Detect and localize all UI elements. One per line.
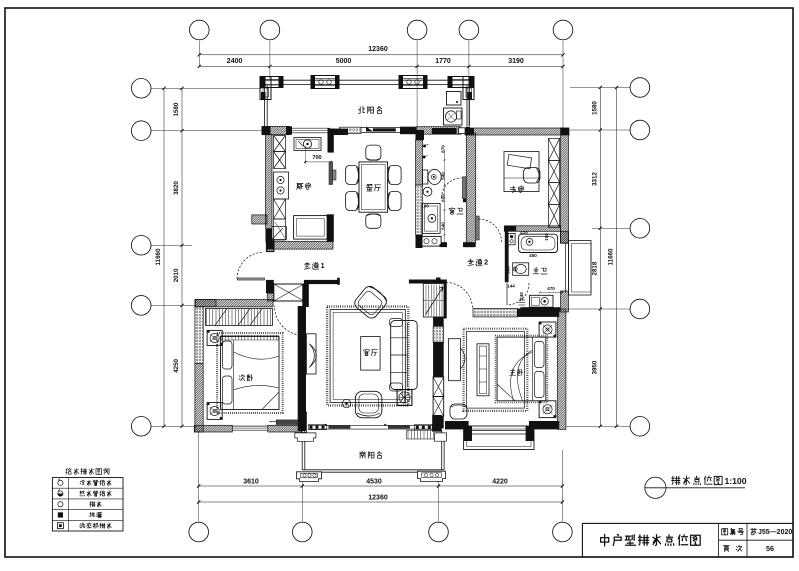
svg-text:190: 190: [421, 204, 429, 209]
svg-text:410: 410: [520, 230, 528, 235]
svg-text:56: 56: [766, 544, 774, 553]
svg-text:4530: 4530: [366, 479, 382, 486]
svg-text:1:100: 1:100: [725, 476, 747, 486]
svg-text:12360: 12360: [368, 46, 388, 53]
svg-text:3190: 3190: [508, 58, 524, 65]
svg-text:150: 150: [544, 233, 549, 241]
svg-text:2818: 2818: [592, 261, 599, 275]
svg-text:3610: 3610: [243, 479, 259, 486]
svg-text:4250: 4250: [173, 358, 180, 372]
svg-text:3950: 3950: [592, 360, 599, 374]
svg-text:3820: 3820: [173, 181, 180, 195]
svg-text:540: 540: [441, 172, 446, 180]
svg-text:11660: 11660: [608, 248, 615, 265]
svg-text:J55—2020: J55—2020: [758, 529, 792, 536]
svg-text:2010: 2010: [173, 268, 180, 282]
svg-text:450: 450: [529, 253, 537, 258]
svg-text:470: 470: [547, 286, 555, 291]
svg-text:3312: 3312: [592, 172, 599, 186]
svg-text:540: 540: [441, 222, 446, 230]
svg-text:2400: 2400: [227, 58, 243, 65]
svg-text:11660: 11660: [155, 248, 162, 265]
svg-text:144: 144: [507, 283, 515, 288]
svg-text:1580: 1580: [173, 102, 180, 116]
svg-text:12360: 12360: [368, 495, 388, 502]
svg-text:240: 240: [519, 292, 524, 300]
svg-text:5000: 5000: [336, 58, 352, 65]
svg-text:700: 700: [312, 155, 321, 161]
svg-text:1580: 1580: [592, 101, 599, 115]
svg-text:4220: 4220: [492, 479, 508, 486]
svg-text:870: 870: [441, 145, 446, 153]
svg-text:2: 2: [484, 258, 488, 267]
svg-text:1: 1: [321, 261, 325, 270]
svg-text:1770: 1770: [435, 58, 451, 65]
